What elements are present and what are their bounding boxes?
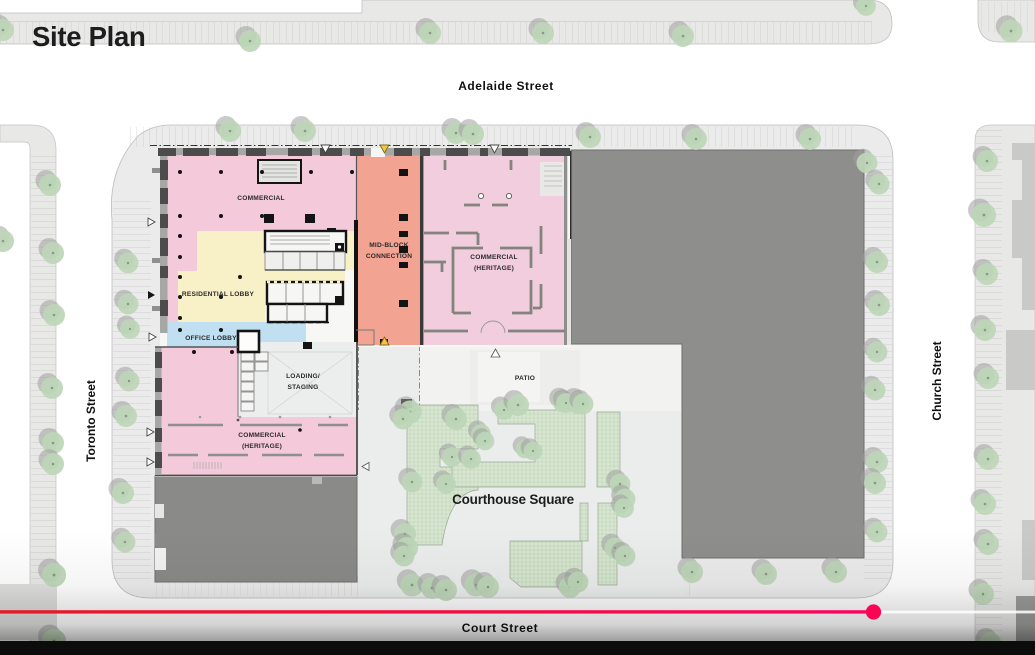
svg-text:RESIDENTIAL LOBBY: RESIDENTIAL LOBBY bbox=[182, 291, 255, 298]
svg-text:Site Plan: Site Plan bbox=[32, 21, 145, 52]
svg-text:COMMERCIAL: COMMERCIAL bbox=[470, 254, 517, 261]
svg-text:Toronto Street: Toronto Street bbox=[84, 380, 98, 462]
svg-text:OFFICE LOBBY: OFFICE LOBBY bbox=[185, 335, 237, 342]
svg-text:COMMERCIAL: COMMERCIAL bbox=[237, 195, 284, 202]
svg-text:(HERITAGE): (HERITAGE) bbox=[474, 265, 514, 272]
svg-text:(HERITAGE): (HERITAGE) bbox=[242, 443, 282, 450]
svg-text:Courthouse Square: Courthouse Square bbox=[452, 492, 575, 507]
svg-text:Church Street: Church Street bbox=[930, 341, 944, 420]
svg-text:COMMERCIAL: COMMERCIAL bbox=[238, 432, 285, 439]
svg-text:PATIO: PATIO bbox=[515, 375, 535, 382]
svg-text:Adelaide Street: Adelaide Street bbox=[458, 79, 554, 93]
svg-text:STAGING: STAGING bbox=[288, 384, 319, 391]
svg-text:CONNECTION: CONNECTION bbox=[366, 253, 412, 260]
svg-text:LOADING/: LOADING/ bbox=[286, 373, 320, 380]
